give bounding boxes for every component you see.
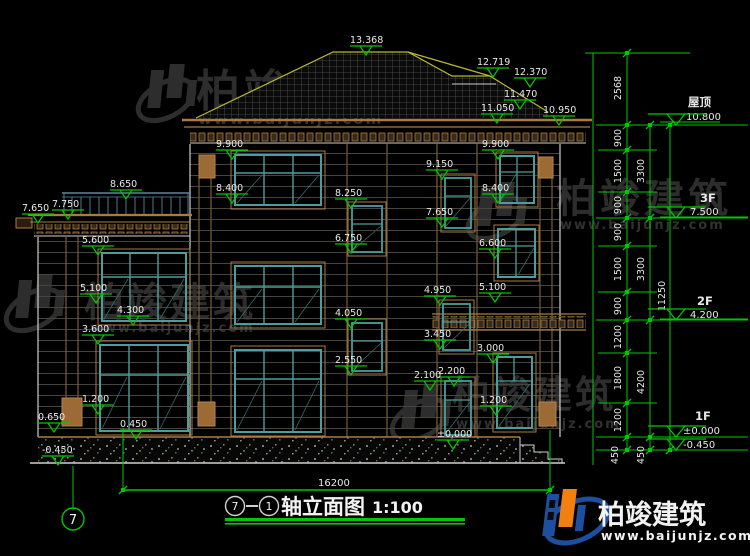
elevation-mark: 10.950 bbox=[543, 105, 576, 116]
dim-segment: 1200 bbox=[613, 325, 624, 349]
dim-total: 11250 bbox=[657, 281, 668, 311]
elevation-mark: 2.550 bbox=[335, 355, 362, 366]
elevation-mark: 7.750 bbox=[52, 199, 79, 210]
elevation-mark: 3.600 bbox=[82, 324, 109, 335]
dim-segment: 3300 bbox=[636, 257, 647, 281]
floor-level: -0.450 bbox=[683, 440, 715, 451]
axis-bubble-number: 7 bbox=[69, 513, 77, 528]
plinth-and-ground bbox=[30, 437, 565, 463]
dim-segment: 3300 bbox=[636, 159, 647, 183]
balcony-railing bbox=[62, 193, 190, 215]
elevation-mark: 2.100 bbox=[414, 370, 441, 381]
dim-segment: 900 bbox=[613, 223, 624, 241]
logo-url-text: www.baijunjz.com bbox=[601, 528, 750, 543]
pilaster-capital-left bbox=[199, 155, 215, 178]
elevation-mark: 5.600 bbox=[82, 235, 109, 246]
watermark-url-text: www.baijunjz.com bbox=[560, 218, 725, 233]
cad-elevation-screenshot: 柏竣建筑 www.baijunjz.com 柏竣建筑 www.baijunjz.… bbox=[0, 0, 750, 556]
elevation-mark: 13.368 bbox=[350, 35, 383, 46]
pilaster-base-left bbox=[198, 402, 215, 426]
pilaster-base-right bbox=[539, 402, 556, 426]
elevation-mark: ±0.000 bbox=[437, 429, 472, 440]
floor-name: 屋顶 bbox=[688, 95, 711, 109]
wing-cornice bbox=[16, 215, 192, 236]
brand-logo: 柏竣建筑 www.baijunjz.com bbox=[539, 489, 750, 552]
elevation-drawing: 柏竣建筑 www.baijunjz.com 柏竣建筑 www.baijunjz.… bbox=[0, 0, 750, 556]
elevation-mark: 12.370 bbox=[514, 67, 547, 78]
right-dimension-chains: 2568 900 1500 900 900 1500 900 1200 1800… bbox=[585, 49, 748, 465]
elevation-mark: 4.300 bbox=[117, 305, 144, 316]
floor-name: 1F bbox=[695, 409, 711, 423]
elevation-mark: 0.650 bbox=[38, 412, 65, 423]
elevation-mark: 3.000 bbox=[477, 343, 504, 354]
dim-segment: 1500 bbox=[613, 159, 624, 183]
elevation-mark: 9.900 bbox=[482, 139, 509, 150]
title-text: 轴立面图 bbox=[281, 495, 365, 519]
title-underline-thin bbox=[225, 523, 465, 525]
elevation-mark: 7.650 bbox=[22, 203, 49, 214]
elevation-mark: 11.470 bbox=[504, 89, 537, 100]
elevation-mark: 4.050 bbox=[335, 308, 362, 319]
elevation-mark: 9.150 bbox=[426, 159, 453, 170]
elevation-mark: 3.450 bbox=[424, 329, 451, 340]
title-axis-from: 7 bbox=[232, 500, 239, 513]
title-scale: 1:100 bbox=[372, 498, 423, 517]
elevation-mark: 12.719 bbox=[477, 57, 510, 68]
elevation-mark: 2.200 bbox=[438, 366, 465, 377]
elevation-mark: 11.050 bbox=[481, 103, 514, 114]
dim-segment: 900 bbox=[613, 129, 624, 147]
elevation-mark: 7.650 bbox=[426, 207, 453, 218]
floor-level: 7.500 bbox=[690, 207, 719, 218]
dim-segment: 4200 bbox=[636, 370, 647, 394]
title-axis-to: 1 bbox=[266, 500, 273, 513]
dim-segment: 1200 bbox=[613, 408, 624, 432]
floor-level: ±0.000 bbox=[683, 426, 720, 437]
elevation-mark: 8.250 bbox=[335, 188, 362, 199]
dim-segment: 450 bbox=[610, 446, 621, 464]
dim-segment: 1800 bbox=[613, 366, 624, 390]
logo-buildings bbox=[542, 489, 588, 536]
dim-segment: 2568 bbox=[613, 76, 624, 100]
dim-segment: 900 bbox=[613, 196, 624, 214]
elevation-mark: 4.950 bbox=[424, 285, 451, 296]
logo-brand-text: 柏竣建筑 bbox=[598, 499, 706, 531]
elevation-mark: 6.750 bbox=[335, 233, 362, 244]
elevation-mark: 5.100 bbox=[80, 283, 107, 294]
elevation-mark: 8.400 bbox=[482, 183, 509, 194]
main-facade bbox=[190, 144, 586, 437]
elevation-mark: 8.400 bbox=[216, 183, 243, 194]
elevation-mark: 0.450 bbox=[120, 419, 147, 430]
pilaster-capital-right bbox=[539, 157, 553, 178]
floor-name: 2F bbox=[697, 294, 713, 308]
elevation-mark: 5.100 bbox=[479, 282, 506, 293]
elevation-mark: 9.900 bbox=[216, 139, 243, 150]
elevation-mark: 6.600 bbox=[479, 238, 506, 249]
elevation-mark: 1.200 bbox=[480, 395, 507, 406]
dim-segment: 900 bbox=[613, 297, 624, 315]
dim-segment: 1500 bbox=[613, 257, 624, 281]
floor-name: 3F bbox=[700, 191, 716, 205]
elevation-mark: 1.200 bbox=[82, 394, 109, 405]
overall-width-dim: 16200 bbox=[318, 478, 350, 489]
dim-segment: 450 bbox=[636, 446, 647, 464]
elevation-mark: -0.450 bbox=[42, 445, 73, 456]
floor-level-flags: 屋顶 10.800 3F 7.500 2F 4.200 1F ±0.000 -0… bbox=[648, 95, 748, 451]
drawing-title: 7 1 轴立面图 1:100 bbox=[225, 495, 465, 525]
elevation-mark: 8.650 bbox=[110, 179, 137, 190]
title-underline-thick bbox=[225, 518, 465, 521]
